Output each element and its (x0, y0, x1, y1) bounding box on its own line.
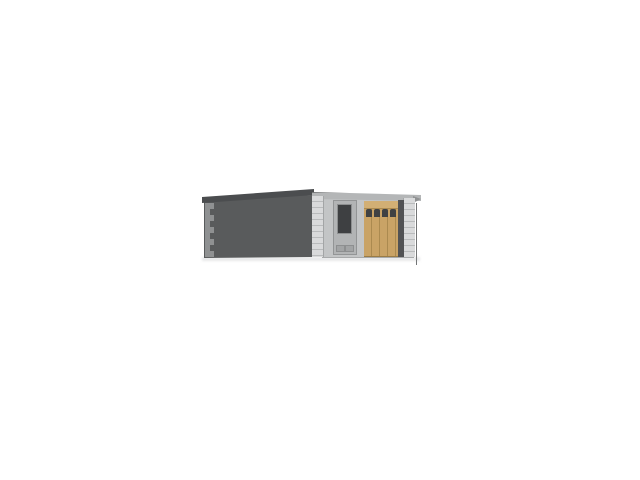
garage-door-window (390, 209, 396, 217)
entry-door-window (338, 205, 351, 233)
entry-door-vent (337, 246, 344, 251)
garage-door-window (374, 209, 380, 217)
entry-door-frame (333, 200, 357, 255)
garage-door-edge-gap (398, 200, 404, 257)
garage-door (364, 201, 399, 257)
building-side-wall (204, 195, 312, 258)
entry-door-vent (346, 246, 353, 251)
garage-door-windows (366, 209, 396, 217)
garage-door-window (366, 209, 372, 217)
render-canvas (0, 0, 640, 480)
garage-door-window (382, 209, 388, 217)
entry-door (334, 201, 356, 254)
facade-left-quoins (312, 196, 324, 257)
right-corner-trim (416, 203, 417, 265)
garage-door-top-rail (364, 201, 399, 209)
left-corner-quoins-toothing (205, 203, 210, 257)
facade-right-quoins (403, 198, 415, 257)
